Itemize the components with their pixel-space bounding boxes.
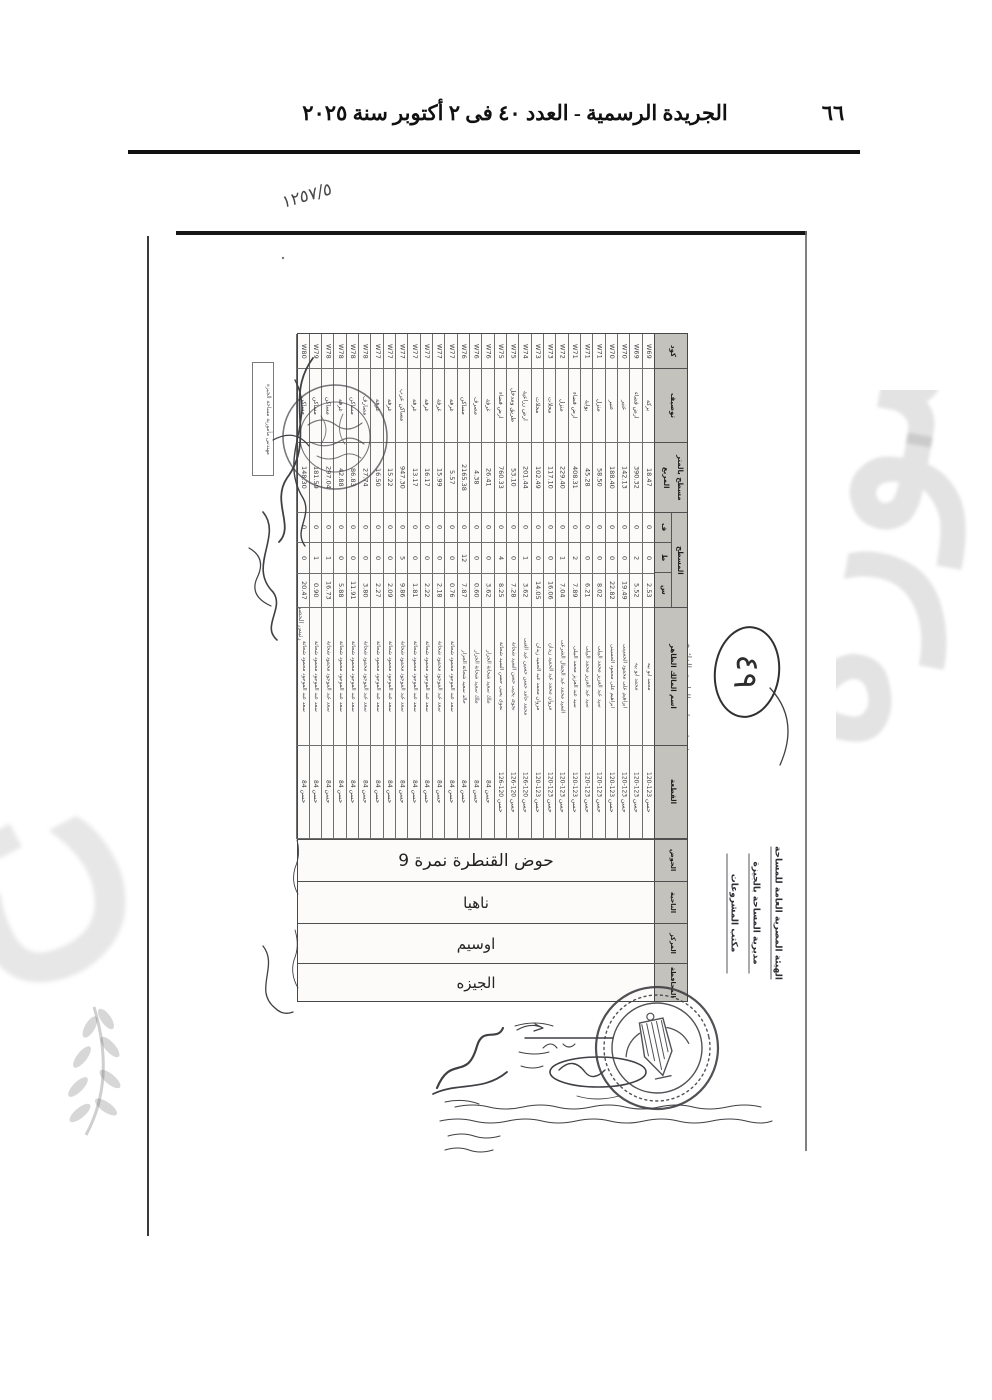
stray-pen-curve <box>770 688 788 765</box>
gazette-header-title: الجريدة الرسمية - العدد ٤٠ فى ٢ أكتوبر س… <box>280 101 750 126</box>
watermark-fragment-left: ن <box>0 690 136 1030</box>
eagle-emblem-icon <box>618 1007 694 1084</box>
signature-table-left <box>273 358 313 546</box>
handwritten-notes <box>440 1105 772 1152</box>
handwritten-file-mark: ١٢٥٧/٥ <box>253 171 362 221</box>
signature-bottom-oval <box>543 1044 646 1099</box>
watermark-fragment-right: صورة <box>836 390 992 860</box>
speck <box>282 257 284 259</box>
margin-marks <box>263 840 299 1013</box>
ink-layer <box>145 230 810 1240</box>
laurel-watermark-icon <box>48 995 148 1140</box>
header-rule <box>128 150 860 154</box>
signature-table-left-2 <box>249 512 277 640</box>
gazette-page: الجريدة الرسمية - العدد ٤٠ فى ٢ أكتوبر س… <box>0 0 992 1400</box>
page-number: ٦٦ <box>808 101 858 126</box>
signature-bottom-left <box>433 1028 507 1104</box>
